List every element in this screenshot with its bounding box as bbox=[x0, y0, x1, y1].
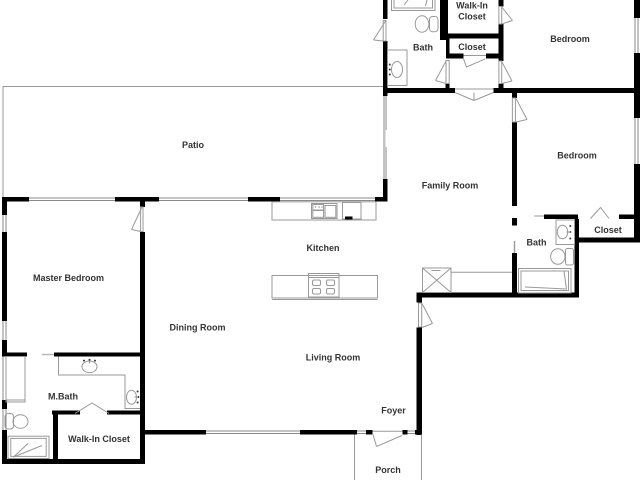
svg-text:Walk-In: Walk-In bbox=[456, 1, 488, 11]
svg-text:Master Bedroom: Master Bedroom bbox=[33, 273, 104, 283]
svg-text:Closet: Closet bbox=[594, 225, 622, 235]
svg-text:M.Bath: M.Bath bbox=[48, 392, 78, 402]
svg-text:Walk-In Closet: Walk-In Closet bbox=[68, 434, 130, 444]
svg-text:Bedroom: Bedroom bbox=[557, 151, 597, 161]
svg-text:Kitchen: Kitchen bbox=[306, 243, 339, 253]
svg-text:Porch: Porch bbox=[375, 465, 401, 475]
svg-text:Bedroom: Bedroom bbox=[550, 34, 590, 44]
svg-text:Foyer: Foyer bbox=[381, 406, 406, 416]
svg-text:Bath: Bath bbox=[413, 43, 433, 53]
svg-text:Bath: Bath bbox=[527, 238, 547, 248]
svg-text:Closet: Closet bbox=[458, 42, 486, 52]
svg-text:Patio: Patio bbox=[182, 140, 205, 150]
svg-text:Family Room: Family Room bbox=[422, 181, 479, 191]
svg-text:Closet: Closet bbox=[458, 12, 486, 22]
svg-text:Dining Room: Dining Room bbox=[170, 323, 226, 333]
svg-text:Living Room: Living Room bbox=[306, 353, 361, 363]
